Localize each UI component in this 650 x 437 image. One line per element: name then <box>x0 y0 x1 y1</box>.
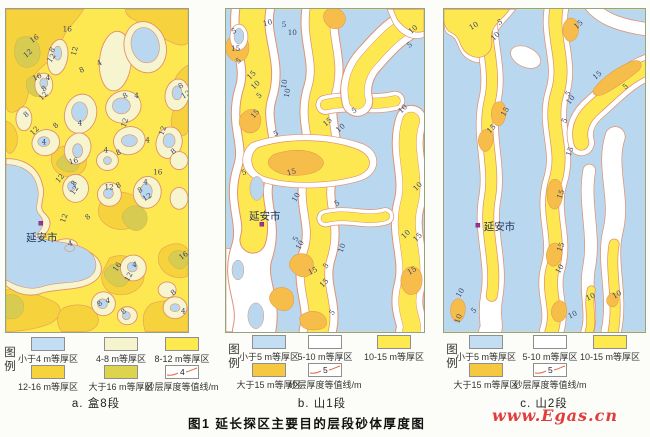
legend-swatch-lt4m <box>31 337 65 351</box>
map-panel-he8: 延安市 161612812128416481288481248121241248… <box>5 8 189 333</box>
legend-label: 小于4 m等厚区 <box>18 352 78 365</box>
contour-value-label: 4 <box>105 296 110 305</box>
legend-label: 10-15 m等厚区 <box>580 350 640 363</box>
legend-swatch-12-16m <box>31 365 65 379</box>
legend-label: 砂层厚度等值线/m <box>289 378 362 391</box>
contour-value-label: 15 <box>231 44 241 53</box>
legend-swatch-gt16m <box>104 365 138 379</box>
contour-sample-value: 4 <box>180 366 185 378</box>
legend-label: 5-10 m等厚区 <box>522 350 577 363</box>
legend-swatch-gt15m <box>469 363 503 377</box>
figure-page: 延安市 161612812128416481288481248121241248… <box>0 0 650 437</box>
contour-value-label: 5 <box>282 20 287 29</box>
map-panel-shan2: 延安市 105101515551015155151515101051010101… <box>443 8 646 333</box>
legend-label: 砂层厚度等值线/m <box>146 380 219 393</box>
contour-value-label: 4 <box>181 307 186 316</box>
legend-label: 10-15 m等厚区 <box>364 350 424 363</box>
legend-label: 5-10 m等厚区 <box>297 350 352 363</box>
contour-value-label: 4 <box>103 146 108 155</box>
legend-swatch-5-10m <box>308 335 342 349</box>
contour-value-label: 16 <box>63 24 73 33</box>
figure-caption: 图1 延长探区主要目的层段砂体厚度图 <box>188 413 425 432</box>
contour-value-label: 4 <box>132 260 137 269</box>
city-marker <box>260 222 264 226</box>
city-label: 延安市 <box>249 209 280 222</box>
contour-line-sample-a: 4 <box>165 365 199 379</box>
map-c-canvas: 延安市 105101515551015155151515101051010101… <box>444 9 645 332</box>
contour-line-sample-c: 5 <box>533 363 567 377</box>
legend-title-a: 图例 <box>3 346 17 374</box>
legend-swatch-8-12m <box>165 337 199 351</box>
panel-caption-a: a. 盒8段 <box>72 395 120 411</box>
legend-label: 8-12 m等厚区 <box>154 352 209 365</box>
contour-value-label: 12 <box>104 182 113 191</box>
contour-value-label: 4 <box>78 119 83 128</box>
contour-value-label: 4 <box>46 73 51 82</box>
legend-label: 小于5 m等厚区 <box>456 350 516 363</box>
legend-label: 砂层厚度等值线/m <box>514 378 587 391</box>
legend-label: 大于16 m等厚区 <box>88 380 153 393</box>
city-marker <box>39 221 43 225</box>
contour-value-label: 10 <box>288 28 298 37</box>
city-label: 延安市 <box>484 220 515 233</box>
legend-label: 4-8 m等厚区 <box>96 352 146 365</box>
contour-value-label: 4 <box>42 138 47 147</box>
legend-swatch-10-15m <box>377 335 411 349</box>
contour-line-sample-b: 5 <box>308 363 342 377</box>
contour-sample-value: 5 <box>323 364 328 376</box>
city-label: 延安市 <box>26 231 57 244</box>
legend-swatch-gt15m <box>252 363 286 377</box>
legend-label: 大于15 m等厚区 <box>453 378 518 391</box>
contour-value-label: 4 <box>134 91 139 100</box>
legend-swatch-5-10m <box>533 335 567 349</box>
contour-value-label: 16 <box>153 167 163 176</box>
legend-swatch-lt5m <box>469 335 503 349</box>
contour-value-label: 4 <box>143 177 148 186</box>
contour-value-label: 4 <box>145 136 150 145</box>
legend-label: 12-16 m等厚区 <box>18 380 78 393</box>
map-panel-shan1: 延安市 510510155105151051010155515101051510… <box>225 8 425 333</box>
legend-swatch-4-8m <box>104 337 138 351</box>
watermark: www.Egas.cn <box>492 406 618 425</box>
city-marker <box>476 223 480 227</box>
contour-sample-value: 5 <box>548 364 553 376</box>
map-a-canvas: 延安市 161612812128416481288481248121241248… <box>6 9 188 332</box>
legend-swatch-10-15m <box>593 335 627 349</box>
legend-label: 小于5 m等厚区 <box>239 350 299 363</box>
panel-caption-b: b. 山1段 <box>298 395 346 411</box>
legend-swatch-lt5m <box>252 335 286 349</box>
map-b-canvas: 延安市 510510155105151051010155515101051510… <box>226 9 424 332</box>
